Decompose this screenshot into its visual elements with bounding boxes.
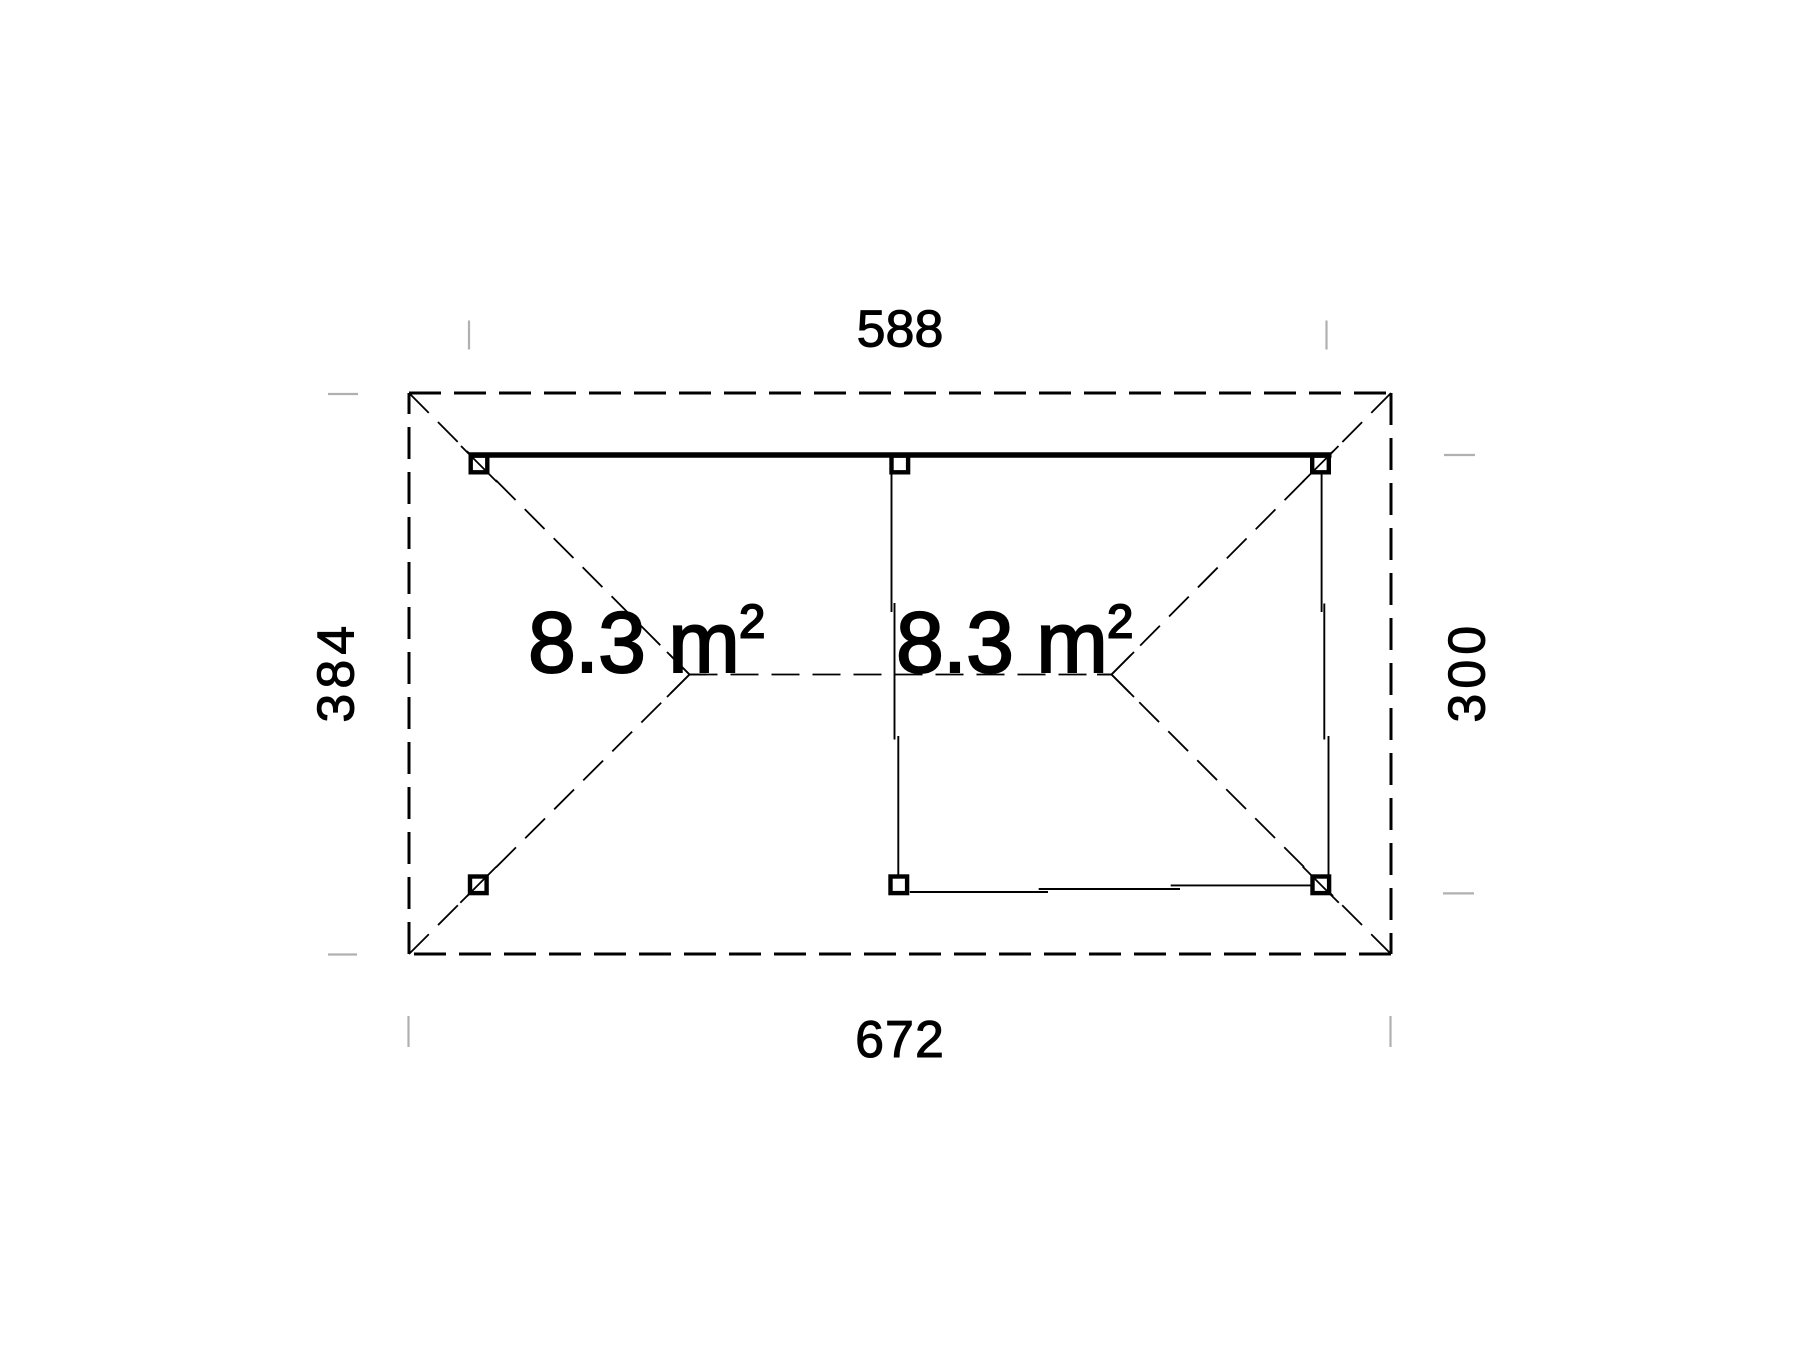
svg-text:672: 672 [855, 1011, 945, 1069]
svg-text:300: 300 [1439, 621, 1497, 723]
svg-text:8.3 m2: 8.3 m2 [528, 595, 764, 692]
svg-text:8.3 m2: 8.3 m2 [896, 595, 1132, 692]
svg-text:588: 588 [857, 301, 944, 359]
svg-text:384: 384 [308, 621, 366, 723]
